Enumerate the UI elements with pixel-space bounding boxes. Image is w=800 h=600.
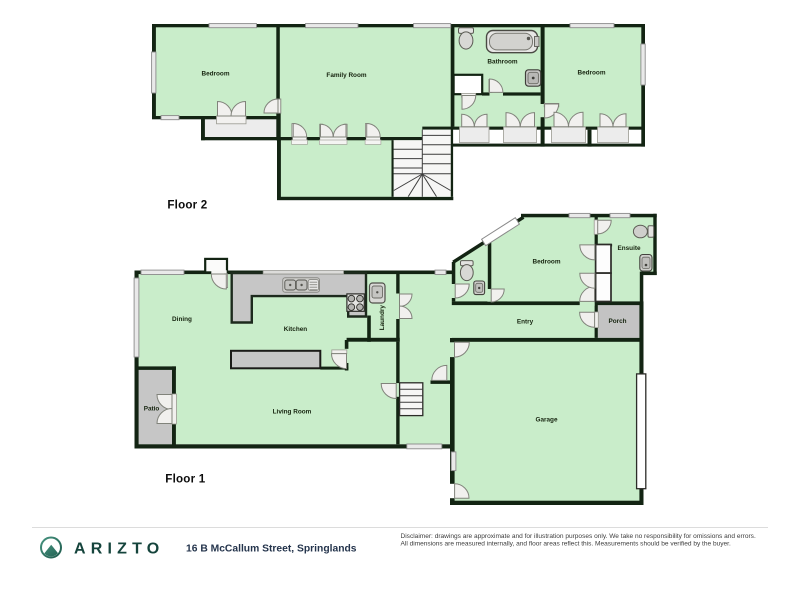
svg-text:Patio: Patio	[144, 405, 160, 412]
svg-text:ARIZTO: ARIZTO	[74, 540, 164, 557]
svg-text:Floor 1: Floor 1	[165, 473, 205, 486]
svg-text:Laundry: Laundry	[379, 305, 386, 331]
svg-text:Bedroom: Bedroom	[201, 70, 229, 77]
svg-text:Ensuite: Ensuite	[617, 245, 641, 252]
svg-text:Bedroom: Bedroom	[532, 258, 560, 265]
svg-text:Garage: Garage	[535, 416, 557, 423]
svg-text:Kitchen: Kitchen	[284, 326, 308, 333]
svg-text:Porch: Porch	[608, 318, 626, 325]
svg-text:Entry: Entry	[517, 318, 534, 325]
svg-text:Family Room: Family Room	[326, 72, 366, 79]
svg-text:All dimensions are measured in: All dimensions are measured internally, …	[401, 540, 731, 547]
svg-text:16 B McCallum Street, Springla: 16 B McCallum Street, Springlands	[186, 543, 357, 554]
svg-text:Bathroom: Bathroom	[487, 59, 517, 66]
svg-text:Dining: Dining	[172, 316, 192, 323]
svg-text:Living Room: Living Room	[273, 408, 312, 415]
svg-text:Disclaimer: drawings are appro: Disclaimer: drawings are approximate and…	[401, 533, 756, 540]
svg-text:Bedroom: Bedroom	[577, 70, 605, 77]
svg-text:Floor 2: Floor 2	[167, 199, 207, 212]
